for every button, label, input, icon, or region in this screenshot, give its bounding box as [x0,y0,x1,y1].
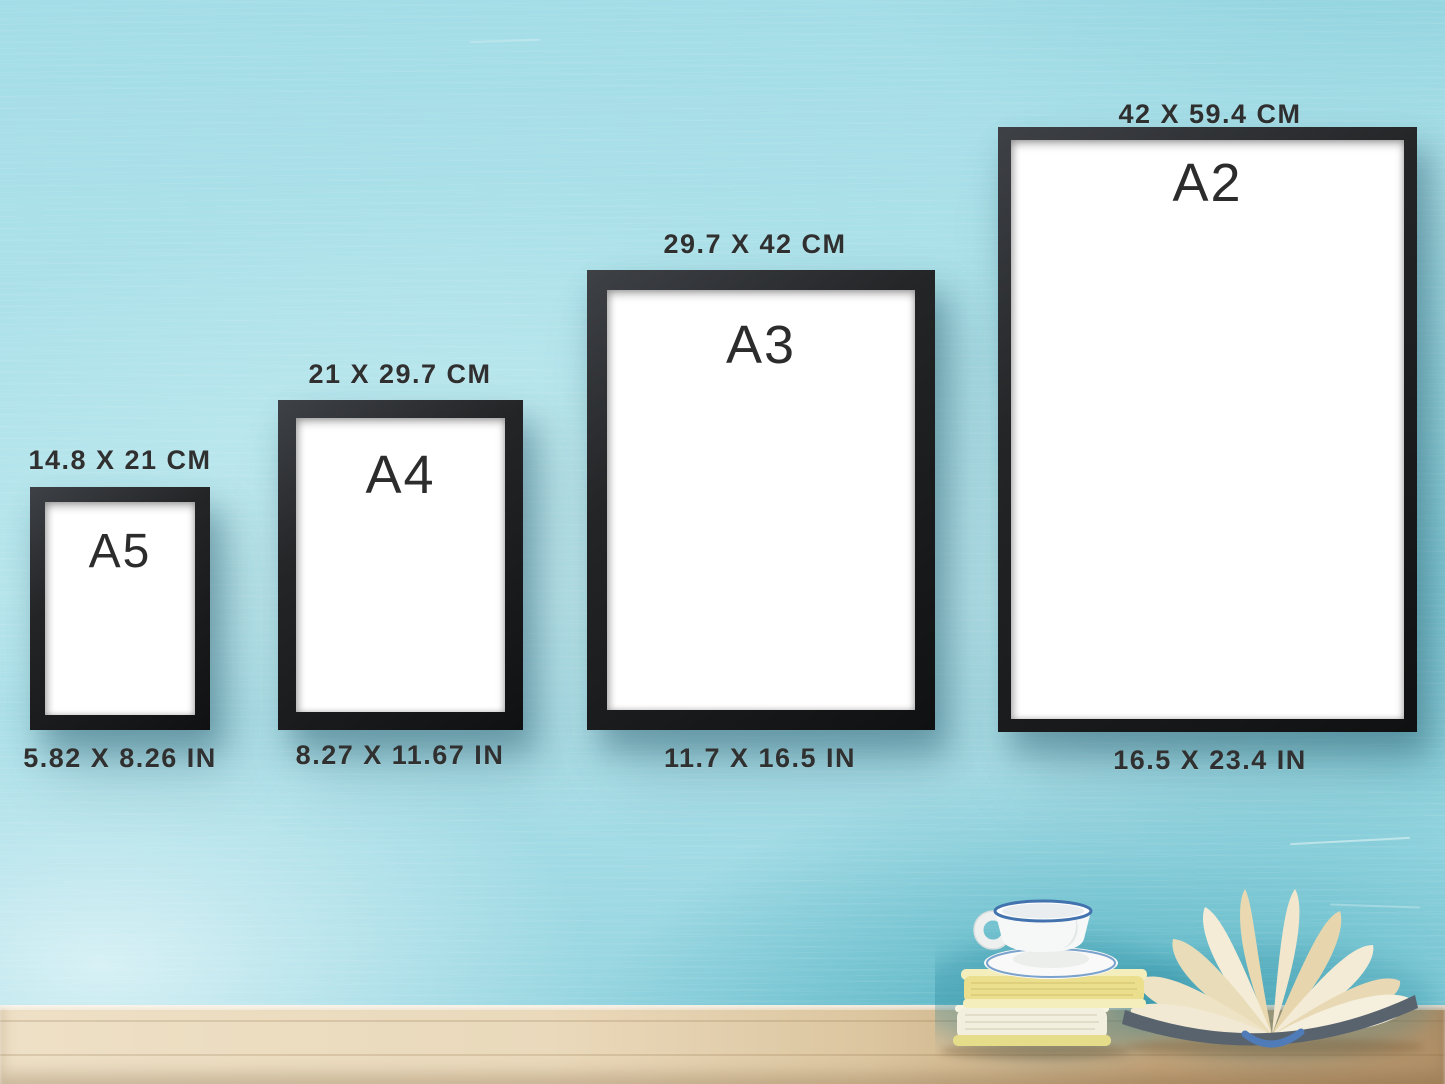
a5-size-in-label: 5.82 X 8.26 IN [0,744,280,774]
still-life-scene [935,875,1445,1084]
a4-size-cm-label: 21 X 29.7 CM [240,360,560,390]
a4-poster-label: A4 [365,418,435,502]
a5-poster: A5 [45,502,195,715]
a4-size-in-label: 8.27 X 11.67 IN [240,741,560,771]
a3-poster-label: A3 [726,290,796,372]
a3-size-in-label: 11.7 X 16.5 IN [600,744,920,774]
a2-poster: A2 [1011,140,1404,719]
coffee-cup [974,901,1118,979]
a2-frame: A2 [998,127,1417,732]
a5-frame: A5 [30,487,210,730]
a5-size-cm-label: 14.8 X 21 CM [0,446,280,476]
a5-poster-label: A5 [89,502,152,576]
a3-frame: A3 [587,270,935,730]
a3-size-cm-label: 29.7 X 42 CM [595,230,915,260]
a2-poster-label: A2 [1172,140,1242,210]
a3-poster: A3 [607,290,915,710]
a4-poster: A4 [296,418,505,712]
a2-size-in-label: 16.5 X 23.4 IN [1050,746,1370,776]
a2-size-cm-label: 42 X 59.4 CM [1050,100,1370,130]
a4-frame: A4 [278,400,523,730]
poster-size-guide: 14.8 X 21 CM A5 5.82 X 8.26 IN 21 X 29.7… [0,0,1445,1084]
